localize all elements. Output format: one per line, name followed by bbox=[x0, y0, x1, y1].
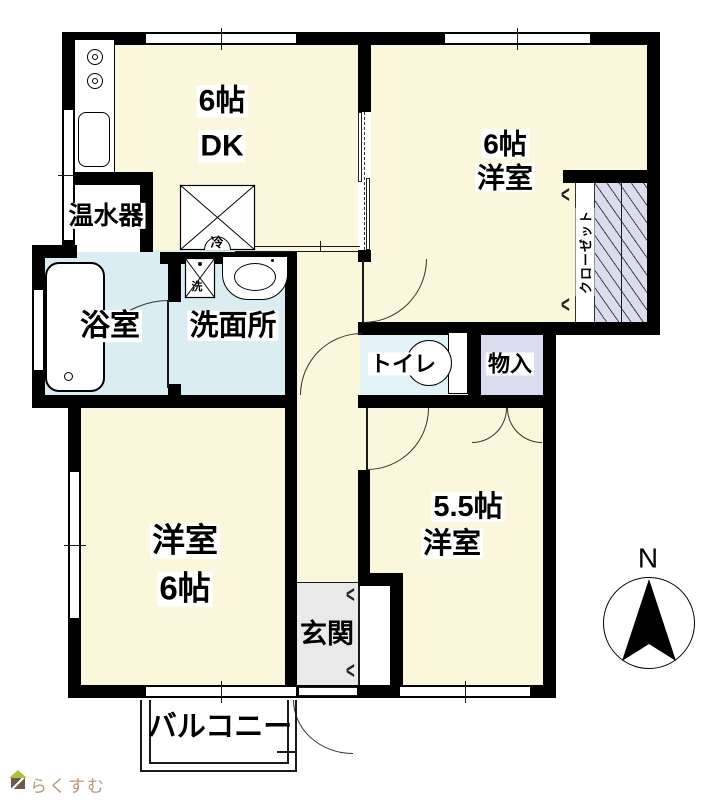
wall-right-lower bbox=[543, 322, 556, 698]
window-sw-room-bottom-tick bbox=[221, 681, 222, 703]
entrance-door-leaf bbox=[277, 751, 295, 753]
bathtub-drain bbox=[64, 372, 73, 381]
se-room-name-label: 洋室 bbox=[421, 529, 483, 559]
wall-se-room-left bbox=[358, 470, 370, 573]
entrance-closet-bifold-icon-bottom: < bbox=[346, 660, 355, 684]
toilet-label: トイレ bbox=[368, 352, 438, 375]
se-room-door-leaf bbox=[366, 408, 368, 470]
washroom-label: 洗面所 bbox=[187, 311, 278, 341]
entrance-threshold-line1 bbox=[299, 687, 357, 688]
washbasin-bowl bbox=[234, 263, 276, 291]
closet-divider-line bbox=[621, 183, 622, 322]
entrance-closet-interior bbox=[358, 586, 390, 685]
entrance-closet-door-line bbox=[358, 586, 360, 685]
bathroom-door-leaf bbox=[167, 300, 169, 388]
compass-north-label: N bbox=[636, 543, 660, 572]
dk-name-label: DK bbox=[198, 130, 245, 162]
dk-hall-track-tick bbox=[320, 241, 321, 251]
closet-bifold-icon-bottom: < bbox=[561, 294, 570, 318]
sliding-door-dk-ne-panel1 bbox=[358, 112, 362, 182]
window-ne-room-top-tick bbox=[517, 28, 518, 50]
sw-room-name-label: 洋室 bbox=[150, 524, 220, 559]
logo-text: らくすむ bbox=[30, 772, 106, 797]
wall-entrance-closet-right bbox=[390, 573, 403, 687]
kitchen-sink bbox=[78, 112, 110, 167]
ne-room-size-label: 6帖 bbox=[481, 129, 529, 158]
washing-machine-label: 洗 bbox=[190, 282, 205, 294]
hallway-floor bbox=[290, 246, 368, 586]
window-bath-left bbox=[32, 290, 45, 370]
window-se-room-bottom-tick bbox=[465, 681, 466, 703]
wall-bath-top bbox=[32, 245, 77, 258]
ne-room-door-leaf bbox=[362, 259, 364, 323]
floor-plan: < < < < 冷 洗 N 6帖 DK 6帖 洋室 bbox=[0, 0, 727, 800]
balcony-outer-left bbox=[140, 700, 142, 772]
se-room-size-label: 5.5帖 bbox=[431, 492, 504, 522]
entrance-closet-bifold-icon-top: < bbox=[346, 584, 355, 608]
wall-toilet-storage-divider bbox=[468, 335, 481, 395]
wall-dk-ne-divider bbox=[358, 45, 371, 112]
entrance-label: 玄関 bbox=[298, 620, 356, 648]
wall-toilet-bottom bbox=[358, 395, 556, 408]
wall-bath-bottom bbox=[32, 395, 297, 408]
entrance-door-arc bbox=[293, 700, 353, 754]
balcony-outer-bottom bbox=[140, 770, 297, 772]
logo: らくすむ bbox=[8, 770, 128, 794]
sliding-door-dk-ne-dash bbox=[364, 112, 365, 250]
dk-hall-track-line2 bbox=[235, 251, 360, 252]
washbasin-faucet-dot bbox=[271, 259, 274, 262]
water-heater-label: 温水器 bbox=[66, 203, 145, 229]
closet-floor bbox=[595, 183, 651, 322]
balcony-inner-bottom bbox=[149, 762, 289, 764]
bathroom-label: 浴室 bbox=[78, 310, 142, 342]
stove-burner-1-inner bbox=[92, 54, 98, 60]
wall-closet-top bbox=[563, 170, 660, 183]
dk-size-label: 6帖 bbox=[197, 85, 248, 117]
stove-burner-2-inner bbox=[92, 78, 98, 84]
wall-ne-room-bottom bbox=[358, 322, 660, 335]
ne-room-name-label: 洋室 bbox=[475, 163, 535, 192]
refrigerator-label: 冷 bbox=[208, 236, 225, 250]
wall-bath-wash-divider-lower bbox=[168, 384, 181, 408]
closet-label: クローゼット bbox=[576, 208, 595, 296]
balcony-label: バルコニー bbox=[146, 712, 294, 742]
sw-room-size-label: 6帖 bbox=[157, 572, 212, 607]
balcony-outer-right bbox=[295, 700, 297, 772]
entrance-threshold-line2 bbox=[299, 695, 357, 696]
compass-north-arrow-icon bbox=[603, 577, 695, 669]
wall-right-upper bbox=[647, 32, 660, 335]
sliding-door-dk-ne-panel2 bbox=[366, 178, 370, 250]
logo-house-roof-icon bbox=[9, 770, 27, 778]
closet-bifold-icon-top: < bbox=[561, 184, 570, 208]
storage-label: 物入 bbox=[486, 352, 534, 375]
window-sw-room-left-tick bbox=[64, 545, 86, 546]
window-kitchen-left-tick bbox=[58, 175, 80, 176]
wall-hall-left bbox=[285, 252, 297, 685]
logo-house-body-icon bbox=[11, 778, 25, 789]
window-dk-top-tick bbox=[221, 28, 222, 50]
